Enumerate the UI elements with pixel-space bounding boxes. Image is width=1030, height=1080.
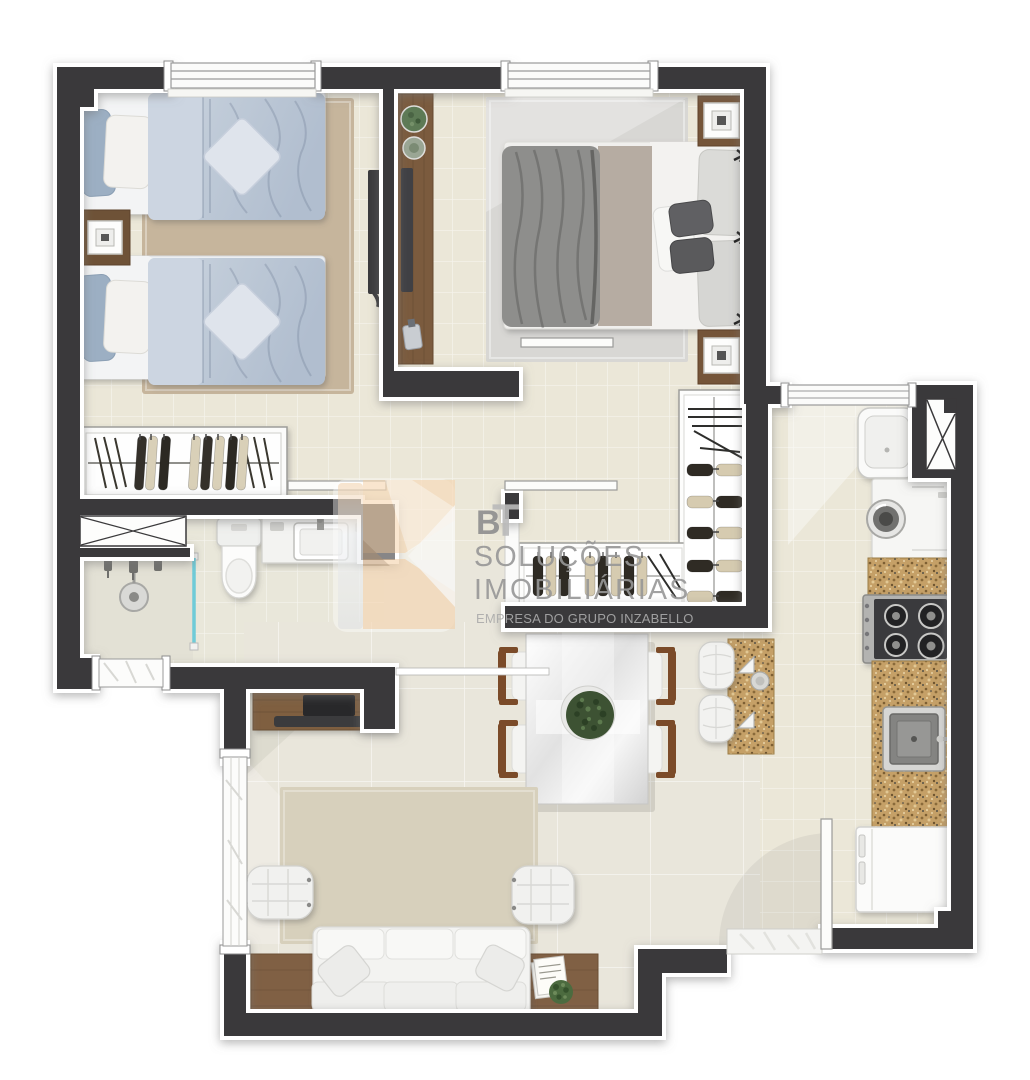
svg-text:EMPRESA DO GRUPO INZABELLO: EMPRESA DO GRUPO INZABELLO: [476, 611, 694, 626]
svg-text:SOLUÇÕES: SOLUÇÕES: [474, 541, 644, 573]
svg-text:IMOBILIÁRIAS: IMOBILIÁRIAS: [474, 574, 690, 606]
svg-text:T: T: [492, 495, 520, 546]
